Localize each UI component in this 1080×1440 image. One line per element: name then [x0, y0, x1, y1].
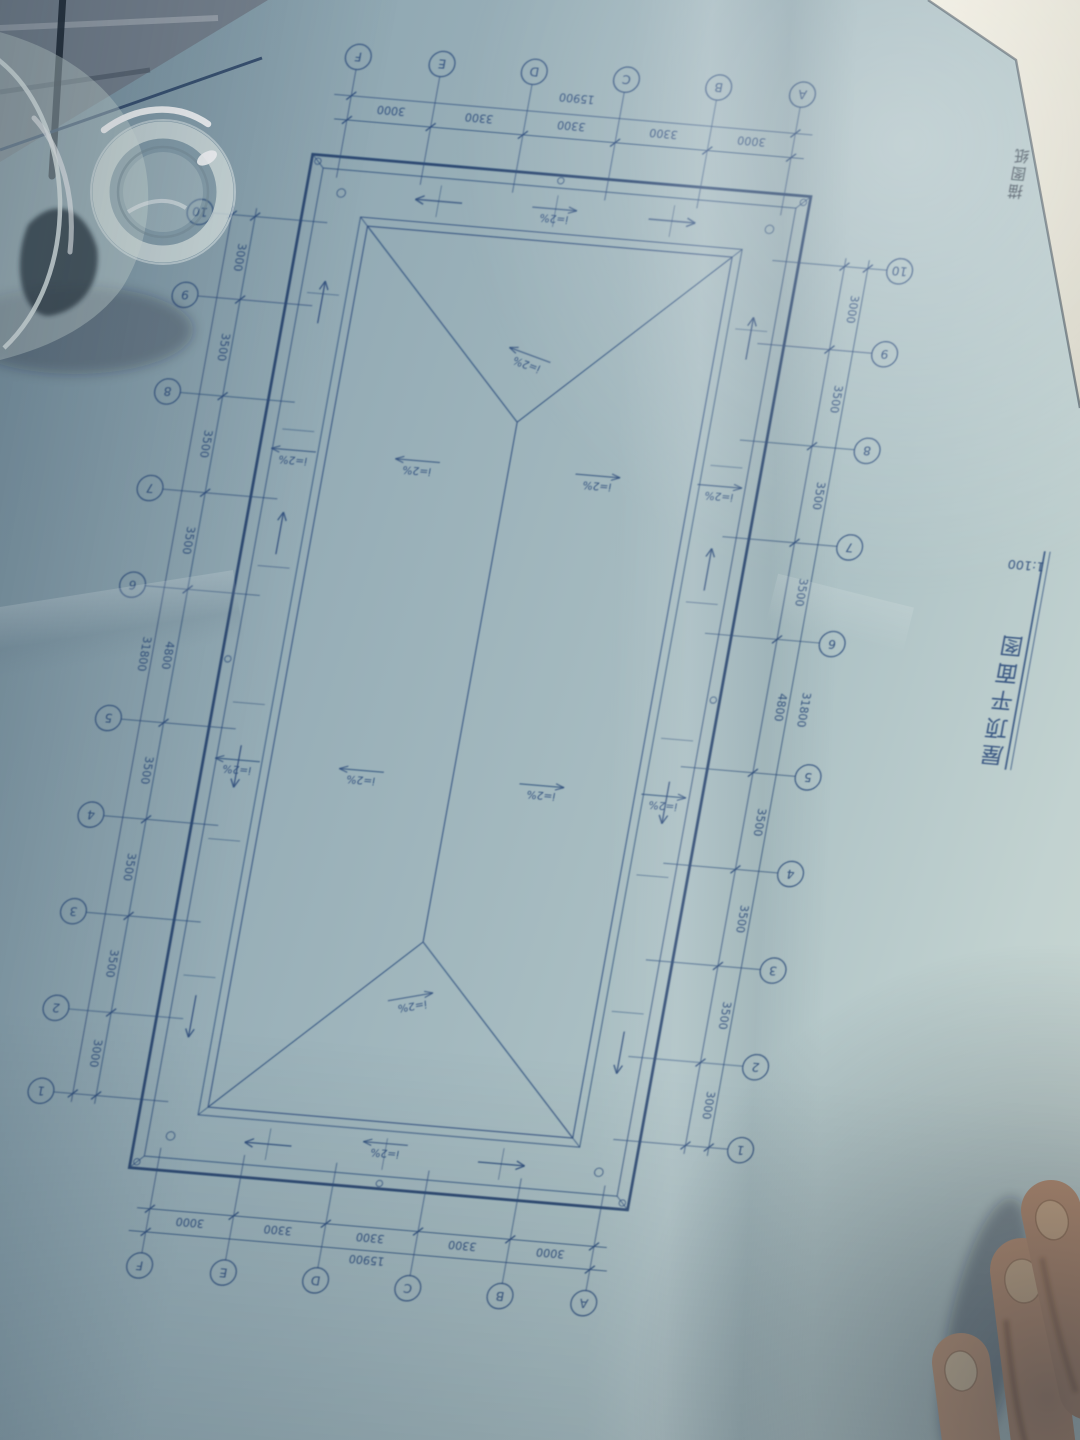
- drawing-line: [226, 1155, 245, 1260]
- stamp-char: 图: [1009, 164, 1027, 183]
- drawing-line: [707, 260, 869, 1156]
- drain-circle: [764, 225, 774, 234]
- slope-label-text: i=2%: [221, 762, 252, 777]
- ridge-and-hips: [208, 226, 732, 1138]
- slope-label: i=2%: [336, 765, 384, 788]
- drawing-line: [781, 107, 801, 215]
- grid-bubble-label: 2: [751, 1060, 761, 1074]
- drawing-line: [586, 1186, 605, 1291]
- drawing-line: [104, 816, 218, 826]
- grid-bubble-label: D: [528, 64, 540, 79]
- grid-bubble-label: B: [713, 80, 724, 95]
- drawing-scale: 1:100: [1007, 556, 1046, 574]
- drawing-line: [180, 393, 294, 403]
- drawing-line: [605, 92, 625, 200]
- dim-total: 31800: [134, 636, 153, 672]
- drain-circle: [166, 1131, 176, 1140]
- drawing-title-char: 屋: [979, 740, 1006, 768]
- slope-label: i=2%: [268, 445, 316, 468]
- drawing-line: [697, 100, 717, 208]
- dim-label: 3000: [175, 1214, 206, 1229]
- slope-label: i=2%: [695, 481, 743, 504]
- slope-label-text: i=2%: [397, 997, 427, 1015]
- grid-bubble-label: 9: [180, 287, 190, 301]
- drawing-line: [628, 1056, 742, 1066]
- hand-fingers: [922, 1190, 1080, 1440]
- grid-bubble-label: 3: [68, 904, 78, 918]
- grid-bubble-label: 5: [103, 711, 113, 725]
- grid-bubble-label: C: [621, 72, 632, 87]
- stamp-char: 纸: [1013, 146, 1031, 165]
- drain-circle: [336, 188, 346, 197]
- dim-label: 3300: [556, 118, 587, 133]
- stamp-char: 描: [1006, 182, 1024, 201]
- drawing-line: [163, 489, 277, 499]
- drawing-line: [613, 1139, 727, 1149]
- grid-bubble-label: E: [218, 1265, 228, 1279]
- slope-label: i=2%: [529, 204, 577, 227]
- drawing-line: [258, 565, 290, 568]
- drain-circle: [594, 1168, 604, 1177]
- drawing-title-char: 面: [993, 659, 1020, 687]
- dim-total: 31800: [794, 692, 813, 728]
- drawing-line: [722, 537, 836, 547]
- slope-labels: i=2%i=2%i=2%i=2%i=2%i=2%i=2%i=2%i=2%i=2%…: [146, 186, 789, 1180]
- drawing-line: [681, 767, 795, 777]
- drawing-line: [705, 633, 819, 643]
- drawing-line: [612, 1011, 644, 1014]
- drawing-line: [420, 77, 440, 185]
- grid-bubble-label: C: [402, 1281, 413, 1296]
- dim-label: 3300: [648, 126, 679, 141]
- slope-label-text: i=2%: [704, 489, 735, 504]
- grid-bubble-label: F: [354, 49, 364, 63]
- dim-total: 15900: [348, 1252, 386, 1268]
- dim-label: 3000: [376, 103, 407, 118]
- grid-bubble-label: A: [578, 1296, 589, 1311]
- drain-circle: [557, 177, 565, 184]
- slope-label: i=2%: [502, 345, 551, 378]
- drawing-line: [684, 258, 846, 1154]
- drawing-line: [637, 875, 669, 878]
- drawing-line: [208, 838, 240, 841]
- dim-label: 3300: [263, 1222, 294, 1237]
- drawing-line: [54, 1092, 168, 1102]
- grid-bubble-label: 5: [803, 770, 813, 784]
- grid-bubble-label: 7: [845, 540, 855, 554]
- slope-label-text: i=2%: [526, 788, 557, 803]
- grid-bubble-label: D: [310, 1273, 322, 1288]
- drawing-line: [233, 702, 265, 705]
- drawing-line: [757, 344, 871, 354]
- slope-label: i=2%: [638, 791, 686, 814]
- slope-label: i=2%: [517, 781, 565, 804]
- slope-label-text: i=2%: [511, 354, 543, 376]
- drawing-line: [663, 863, 777, 873]
- dim-total: 15900: [558, 90, 596, 106]
- scene-svg: AABBCCDDEEFF1122334455667788991010300030…: [0, 0, 1080, 1440]
- dim-label: 3300: [447, 1238, 478, 1253]
- drawing-line: [512, 84, 532, 192]
- dim-label: 3300: [355, 1230, 386, 1245]
- drawing-line: [282, 429, 314, 432]
- roof-plan: [129, 154, 811, 1210]
- drawing-title-char: 平: [988, 686, 1015, 714]
- slope-label-text: i=2%: [277, 452, 308, 467]
- drawing-line: [686, 602, 718, 605]
- drawing-line: [121, 719, 235, 729]
- grid-bubble-label: 7: [145, 481, 155, 495]
- drawing-line: [336, 70, 356, 178]
- slope-label: i=2%: [212, 755, 260, 778]
- grid-bubble-label: F: [135, 1258, 145, 1272]
- drain-circle: [376, 1180, 384, 1187]
- slope-label: i=2%: [392, 456, 440, 479]
- slope-label-text: i=2%: [401, 463, 432, 478]
- grid-bubble-label: 6: [127, 577, 137, 591]
- drawing-line: [711, 465, 743, 468]
- slope-label: i=2%: [388, 990, 435, 1017]
- drawing-line: [646, 960, 760, 970]
- slope-label: i=2%: [573, 471, 621, 494]
- grid-bubble-label: 4: [86, 807, 96, 821]
- title-block: 屋顶平面图1:100: [971, 548, 1050, 770]
- slope-label-text: i=2%: [345, 773, 376, 788]
- dim-label: 3300: [464, 110, 495, 125]
- drawing-line: [145, 586, 259, 596]
- drawing-line: [142, 1148, 161, 1253]
- slope-label-text: i=2%: [369, 1146, 400, 1161]
- grid-bubble-label: E: [437, 57, 447, 71]
- grid-bubble-label: 1: [736, 1143, 746, 1157]
- drawing-line: [740, 440, 854, 450]
- grid-bubble-label: 8: [162, 384, 172, 398]
- drawing-title-char: 顶: [983, 713, 1010, 741]
- drawing-line: [772, 261, 886, 271]
- grid-bubble-label: B: [495, 1289, 506, 1304]
- slope-label: i=2%: [360, 1138, 408, 1161]
- drawing-line: [198, 296, 312, 306]
- grid-bubble-label: 9: [880, 347, 890, 361]
- drawing-line: [410, 1171, 429, 1276]
- paper-stamp: 描图纸: [1006, 146, 1031, 201]
- slope-label-text: i=2%: [538, 211, 569, 226]
- drawing-line: [69, 1009, 183, 1019]
- grid-bubble-label: 10: [891, 264, 909, 279]
- dim-label: 3000: [535, 1245, 566, 1260]
- grid-bubble-label: A: [796, 87, 807, 102]
- drawing-line: [86, 912, 200, 922]
- drain-circle: [710, 697, 718, 704]
- drawing-line: [318, 1163, 337, 1268]
- dim-label: 3000: [736, 133, 767, 148]
- grid-bubble-label: 6: [827, 637, 837, 651]
- handle-hole: [123, 152, 203, 232]
- drawing-title-char: 图: [998, 631, 1025, 659]
- drawing-line: [184, 975, 216, 978]
- grid-bubble-label: 4: [785, 867, 795, 881]
- drawing-line: [661, 738, 693, 741]
- grid-bubble-label: 1: [36, 1083, 46, 1097]
- grid-bubble-label: 2: [51, 1000, 61, 1014]
- grid-bubble-label: 3: [768, 963, 778, 977]
- drain-circle: [224, 655, 232, 662]
- grid-bubble-label: 8: [862, 443, 872, 457]
- photo-root: AABBCCDDEEFF1122334455667788991010300030…: [0, 0, 1080, 1440]
- slope-label-text: i=2%: [648, 798, 679, 813]
- slope-label-text: i=2%: [582, 478, 613, 493]
- white-paper-sheet: [928, 0, 1080, 408]
- drawing-line: [502, 1178, 521, 1283]
